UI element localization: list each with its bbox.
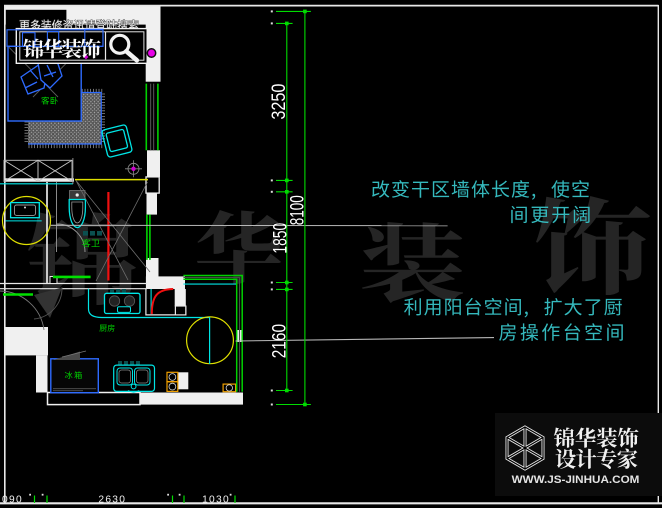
svg-text:2160: 2160 bbox=[268, 324, 290, 359]
svg-text:1030: 1030 bbox=[202, 495, 230, 506]
svg-text:WWW.JS-JINHUA.COM: WWW.JS-JINHUA.COM bbox=[512, 474, 640, 486]
svg-text:8100: 8100 bbox=[286, 195, 308, 225]
svg-text:2630: 2630 bbox=[98, 495, 126, 506]
svg-text:1850: 1850 bbox=[269, 223, 291, 254]
svg-text:090: 090 bbox=[2, 495, 23, 506]
svg-text:3250: 3250 bbox=[268, 83, 290, 119]
